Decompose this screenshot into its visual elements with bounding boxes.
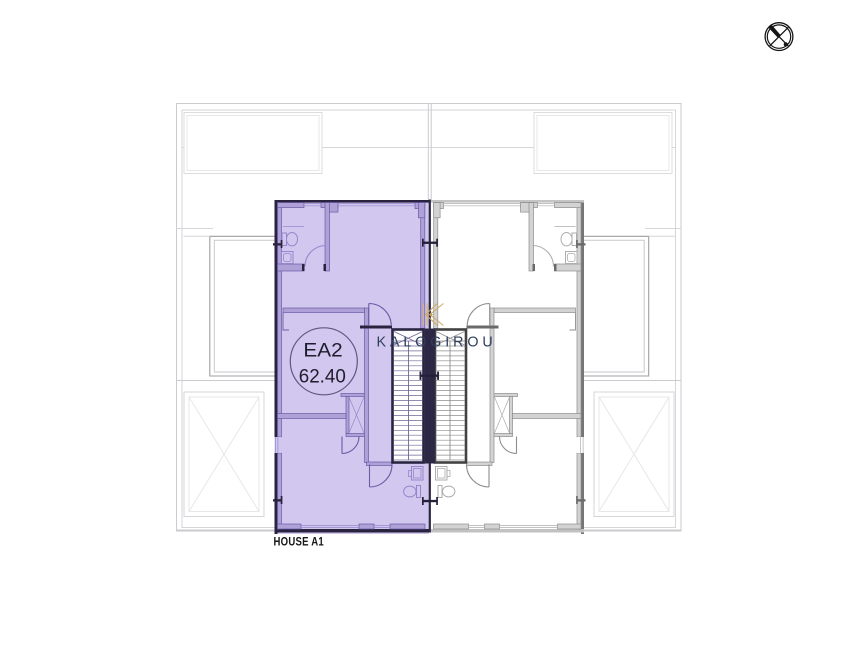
svg-text:KALOGIROU: KALOGIROU [377, 335, 497, 351]
svg-text:62.40: 62.40 [299, 365, 346, 387]
svg-text:EA2: EA2 [303, 340, 342, 362]
svg-text:HOUSE A1: HOUSE A1 [274, 536, 325, 549]
